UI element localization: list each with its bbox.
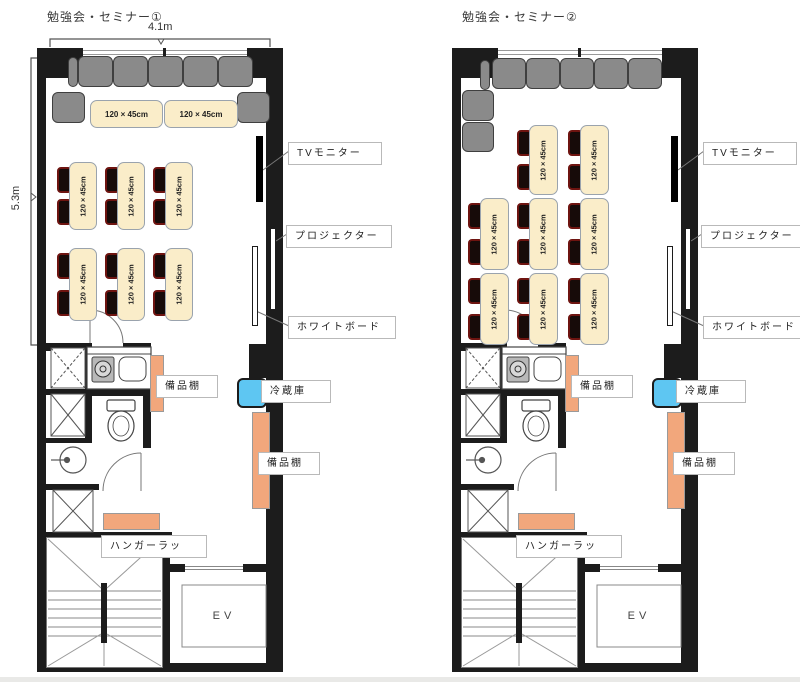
projector-screen	[685, 228, 691, 310]
shelf-label-lower: 備品棚	[673, 452, 735, 475]
seminar-table: 120 × 45cm	[529, 273, 558, 345]
sofa-cushion	[218, 56, 253, 87]
sink-icon	[119, 357, 146, 381]
elevator-label: EV	[182, 585, 266, 647]
seminar-table: 120 × 45cm	[580, 273, 609, 345]
width-dimension: 4.1m	[148, 21, 172, 33]
seminar-table: 120 × 45cm	[165, 248, 193, 321]
kitchenette	[87, 347, 151, 389]
elevator-label: EV	[597, 585, 681, 647]
table-size-label: 120 × 45cm	[590, 289, 599, 329]
whiteboard	[667, 246, 673, 326]
table-size-label: 120 × 45cm	[105, 110, 148, 119]
seminar-table: 120 × 45cm	[117, 248, 145, 321]
shelf-label-upper: 備品棚	[156, 375, 218, 398]
seminar-table: 120 × 45cm	[529, 198, 558, 270]
toilet	[522, 400, 550, 441]
sofa-cushion	[480, 60, 490, 90]
seminar-table: 120 × 45cm	[90, 100, 163, 128]
toilet	[107, 400, 135, 441]
plan-1-title: 勉強会・セミナー①	[47, 8, 163, 25]
sofa-cushion	[113, 56, 148, 87]
projector-label: プロジェクター	[286, 225, 392, 248]
table-size-label: 120 × 45cm	[175, 176, 184, 216]
projector-label: プロジェクター	[701, 225, 800, 248]
table-size-label: 120 × 45cm	[490, 289, 499, 329]
floor-plan-seminar-1: 120 × 45cm120 × 45cm120 × 45cm120 × 45cm…	[37, 48, 283, 672]
sofa-cushion	[560, 58, 594, 89]
sofa-cushion	[52, 92, 85, 123]
sofa-cushion	[183, 56, 218, 87]
hanger-rack	[518, 513, 575, 530]
whiteboard-label: ホワイトボード	[288, 316, 396, 339]
tv-monitor	[256, 136, 263, 202]
sofa-cushion	[237, 92, 270, 123]
table-size-label: 120 × 45cm	[539, 289, 548, 329]
hanger-rack-label: ハンガーラッ	[101, 535, 207, 558]
shelf-label-upper: 備品棚	[571, 375, 633, 398]
seminar-table: 120 × 45cm	[165, 162, 193, 230]
table-size-label: 120 × 45cm	[539, 140, 548, 180]
seminar-table: 120 × 45cm	[117, 162, 145, 230]
sofa-cushion	[492, 58, 526, 89]
whiteboard	[252, 246, 258, 326]
hanger-rack	[103, 513, 160, 530]
table-size-label: 120 × 45cm	[590, 214, 599, 254]
seminar-table: 120 × 45cm	[529, 125, 558, 195]
plan-2-title: 勉強会・セミナー②	[462, 8, 578, 25]
sofa-cushion	[148, 56, 183, 87]
kitchenette	[502, 347, 566, 389]
sofa-cushion	[526, 58, 560, 89]
fridge-label: 冷蔵庫	[261, 380, 331, 403]
fridge-label: 冷蔵庫	[676, 380, 746, 403]
seminar-table: 120 × 45cm	[69, 248, 97, 321]
floor-plan-page: 勉強会・セミナー① 勉強会・セミナー② 4.1m 5.3m	[0, 0, 800, 682]
height-dimension: 5.3m	[10, 186, 22, 210]
hanger-rack-label: ハンガーラッ	[516, 535, 622, 558]
table-size-label: 120 × 45cm	[175, 264, 184, 304]
tv-monitor-label: TVモニター	[288, 142, 382, 165]
projector-screen	[270, 228, 276, 310]
corner-block-right	[662, 48, 698, 78]
sofa-cushion	[68, 57, 78, 87]
page-edge-bar	[0, 677, 800, 682]
seminar-table: 120 × 45cm	[580, 125, 609, 195]
table-size-label: 120 × 45cm	[539, 214, 548, 254]
seminar-table: 120 × 45cm	[580, 198, 609, 270]
table-size-label: 120 × 45cm	[127, 264, 136, 304]
seminar-table: 120 × 45cm	[480, 198, 509, 270]
table-size-label: 120 × 45cm	[79, 176, 88, 216]
sofa-cushion	[462, 90, 494, 121]
seminar-table: 120 × 45cm	[164, 100, 238, 128]
sofa-cushion	[594, 58, 628, 89]
tv-monitor-label: TVモニター	[703, 142, 797, 165]
sofa-cushion	[462, 122, 494, 152]
whiteboard-label: ホワイトボード	[703, 316, 800, 339]
tv-monitor	[671, 136, 678, 202]
sofa-cushion	[78, 56, 113, 87]
sink-icon	[534, 357, 561, 381]
sofa-cushion	[628, 58, 662, 89]
floor-plan-seminar-2: 120 × 45cm120 × 45cm120 × 45cm120 × 45cm…	[452, 48, 698, 672]
table-size-label: 120 × 45cm	[590, 140, 599, 180]
shelf-label-lower: 備品棚	[258, 452, 320, 475]
table-size-label: 120 × 45cm	[79, 264, 88, 304]
table-size-label: 120 × 45cm	[180, 110, 223, 119]
table-size-label: 120 × 45cm	[490, 214, 499, 254]
seminar-table: 120 × 45cm	[69, 162, 97, 230]
seminar-table: 120 × 45cm	[480, 273, 509, 345]
table-size-label: 120 × 45cm	[127, 176, 136, 216]
